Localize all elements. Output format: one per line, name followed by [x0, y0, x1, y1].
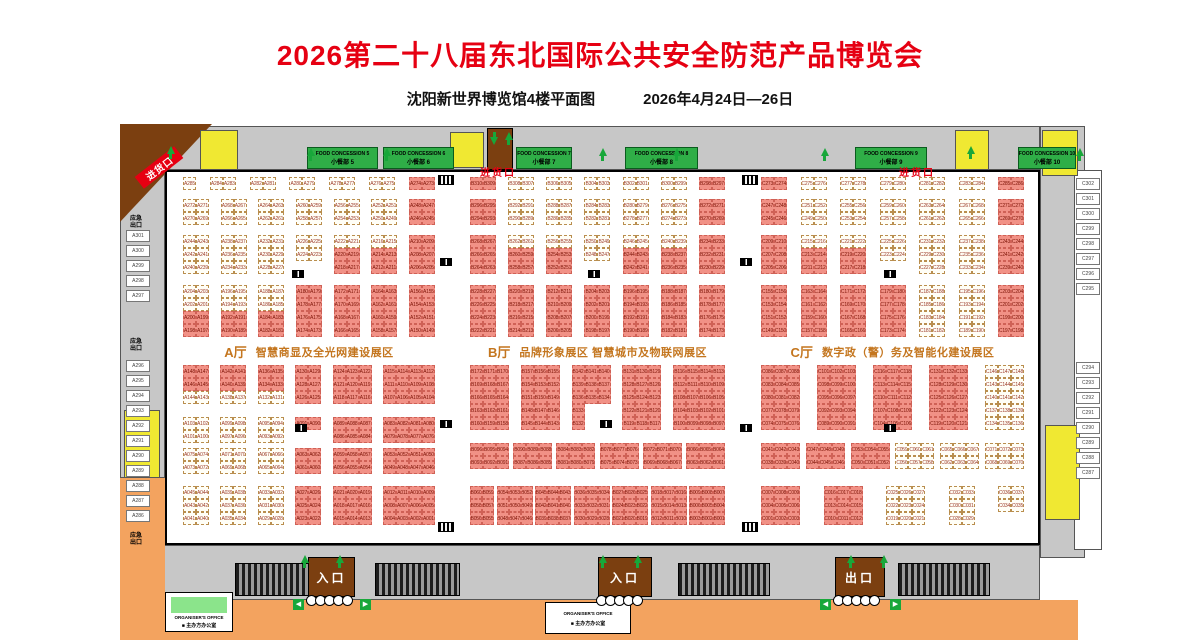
booth: A151 — [422, 311, 435, 324]
booth: B049 — [521, 499, 533, 512]
booth: C257 — [880, 212, 893, 225]
booth-group: C221C222C219C220C217C218 — [840, 235, 866, 274]
booth: B091 — [496, 456, 509, 469]
booth: A224 — [296, 248, 309, 261]
booth: A163 — [384, 285, 397, 298]
booth-band: C209C210C207C208C205C206C215C216C213C214… — [761, 235, 1024, 274]
booth: B201 — [597, 298, 610, 311]
booth: B268 — [470, 235, 483, 248]
booth: C259 — [880, 199, 893, 212]
emergency-exit-label: 应急出口 — [124, 339, 148, 353]
booth: B228 — [470, 285, 483, 298]
booth: B007 — [713, 486, 725, 499]
booth: C033 — [962, 486, 975, 499]
booth: A003 — [396, 512, 409, 525]
booth: A206 — [409, 261, 422, 274]
booth-group: A188A187A186A185A184A183A182A181 — [258, 285, 284, 337]
booth: C283 — [959, 177, 972, 190]
booth: C209 — [761, 235, 774, 248]
booth: B239 — [674, 235, 687, 248]
booth: B157 — [521, 365, 534, 378]
booth: B064 — [712, 443, 725, 456]
booth: B100 — [673, 417, 686, 430]
booth: B067 — [669, 456, 682, 469]
booth: A164 — [371, 285, 384, 298]
booth: B255 — [559, 235, 572, 248]
booth: A155 — [422, 285, 435, 298]
booth: A109 — [409, 378, 422, 391]
booth: C139 — [1011, 404, 1024, 417]
booth: B168 — [483, 378, 496, 391]
booth-group: A156A155A154A153A152A151A150A149 — [409, 285, 435, 337]
booth: B240 — [661, 235, 674, 248]
booth: B095 — [483, 443, 496, 456]
booth: B301 — [636, 177, 649, 190]
booth: C124 — [955, 404, 968, 417]
booth: B259 — [521, 248, 534, 261]
revolving-door-icon — [833, 595, 878, 606]
booth: C217 — [840, 261, 853, 274]
booth: C221 — [840, 235, 853, 248]
booth: A008 — [383, 499, 396, 512]
booth: C169 — [840, 298, 853, 311]
booth: A290 — [126, 450, 150, 462]
booth: B188 — [661, 285, 674, 298]
booth: C078 — [774, 404, 787, 417]
booth: C292 — [1076, 392, 1100, 404]
booth: B104 — [673, 404, 686, 417]
booth: C108 — [886, 404, 899, 417]
booth-group: A142A141A140A139A138A137 — [220, 365, 246, 404]
booth: A177 — [309, 298, 322, 311]
booth-group: A075A074A073A072 — [183, 448, 209, 474]
booth-group: B234B233B232B231B230B229 — [699, 235, 725, 274]
booth: B194 — [623, 298, 636, 311]
booth-group: C047C048C049C044C045C046 — [806, 443, 845, 469]
booth: B115 — [686, 365, 699, 378]
booth-group: A124A123A122A121A120A119A118A117A116 — [333, 365, 372, 404]
booth: A088 — [346, 417, 359, 430]
booth: B299 — [674, 177, 687, 190]
booth: C202 — [1011, 298, 1024, 311]
booth: C011 — [837, 512, 850, 525]
booth: C119 — [929, 417, 942, 430]
booth: A043 — [183, 499, 196, 512]
booth: B174 — [699, 324, 712, 337]
booth: B191 — [636, 311, 649, 324]
booth: C084 — [774, 378, 787, 391]
booth: B072 — [643, 443, 656, 456]
stairs-icon — [438, 522, 454, 532]
booth: C220 — [853, 248, 866, 261]
booth: C121 — [955, 417, 968, 430]
booth: B246 — [623, 235, 636, 248]
booth: C137 — [985, 404, 998, 417]
booth: C003 — [787, 512, 800, 525]
booth: C184 — [932, 311, 945, 324]
booth: B050 — [509, 499, 521, 512]
booth: B160 — [470, 417, 483, 430]
booth: A199 — [196, 311, 209, 324]
booth: C103 — [843, 365, 856, 378]
booth-band: C086C087C088C083C084C085C080C081C082C077… — [761, 365, 1024, 430]
floor-plan-page: 2026第二十八届东北国际公共安全防范产品博览会 沈阳新世界博览馆4楼平面图 2… — [0, 0, 1200, 644]
booth-group: C171C172C169C170C167C168C165C166 — [840, 285, 866, 337]
booth: B097 — [712, 417, 725, 430]
arrow-up-icon — [633, 555, 642, 568]
booth: C260 — [893, 199, 906, 212]
booth: B226 — [470, 298, 483, 311]
booth: A027 — [295, 486, 308, 499]
booth: B192 — [623, 311, 636, 324]
booth: B139 — [572, 378, 585, 391]
booth: B306 — [546, 177, 559, 190]
booth: B096 — [470, 443, 483, 456]
booth: C038 — [761, 456, 774, 469]
booth-group: A196A195A194A193A192A191A190A189 — [221, 285, 247, 337]
booth: A099 — [220, 417, 233, 430]
arrow-up-icon — [166, 146, 175, 159]
booth: A101 — [183, 430, 196, 443]
booth: C115 — [899, 378, 912, 391]
booth: A021 — [333, 486, 346, 499]
booth: A107 — [383, 391, 396, 404]
booth: A157 — [384, 324, 397, 337]
booth-band: B172B171B170B169B168B167B166B165B164B163… — [470, 365, 725, 430]
booth: A041 — [183, 512, 196, 525]
booth: C074 — [761, 417, 774, 430]
booth: A263 — [271, 199, 284, 212]
booth: C069 — [998, 456, 1011, 469]
booth: C081 — [774, 391, 787, 404]
booth-group: A180A179A178A177A176A175A174A173 — [296, 285, 322, 337]
booth: B261 — [521, 235, 534, 248]
booth: C204 — [1011, 285, 1024, 298]
booth: C181 — [919, 324, 932, 337]
booth-group: A210A209A208A207A206A205 — [409, 235, 435, 274]
booth: B280 — [623, 199, 636, 212]
booth: B051 — [497, 499, 509, 512]
booth: A215 — [384, 235, 397, 248]
booth: A082 — [396, 417, 409, 430]
booth: A150 — [409, 324, 422, 337]
booth: C219 — [840, 248, 853, 261]
booth: C232 — [932, 235, 945, 248]
booth: C278 — [853, 177, 866, 190]
booth: A108 — [422, 378, 435, 391]
supply-entrance-label: 进货口 — [469, 164, 527, 179]
booth: B230 — [699, 261, 712, 274]
booth: B134 — [598, 391, 611, 404]
booth: A078 — [396, 430, 409, 443]
booth: B258 — [508, 261, 521, 274]
booth: C042 — [774, 443, 787, 456]
organiser-office-cn: ■ 主办方办公室 — [546, 620, 630, 627]
booth: A240 — [183, 261, 196, 274]
booth: C012 — [850, 512, 863, 525]
booth: A125 — [308, 391, 321, 404]
booth: A254 — [334, 212, 347, 225]
booth: B107 — [686, 391, 699, 404]
revolving-door-icon — [596, 595, 641, 606]
booth: B102 — [699, 404, 712, 417]
booth-group: B018B017B016B015B014B013B012B011B010 — [651, 486, 687, 525]
booth: C125 — [929, 391, 942, 404]
booth-group: A027A026A025A024A023A022 — [295, 486, 321, 525]
booth-group: B288B287B286B285 — [546, 199, 572, 225]
booth: B058 — [470, 499, 482, 512]
booth: B021 — [612, 512, 624, 525]
booth: C026 — [899, 486, 912, 499]
booth: A012 — [383, 486, 396, 499]
booth: C096 — [830, 391, 843, 404]
booth: B256 — [546, 235, 559, 248]
booth: B143 — [547, 417, 560, 430]
hall-c-name: 数字政（警）务及智能化建设展区 — [822, 344, 995, 360]
booth: B110 — [699, 378, 712, 391]
booth: A233 — [234, 261, 247, 274]
booth: B036 — [574, 486, 586, 499]
booth: B169 — [470, 378, 483, 391]
booth: B090 — [513, 443, 526, 456]
booth-group: C032C033C030C031C028C029 — [949, 486, 975, 525]
booth: B094 — [496, 443, 509, 456]
booth: B202 — [584, 298, 597, 311]
booth: A300 — [126, 245, 150, 257]
booth: A236 — [221, 248, 234, 261]
booth: A086 — [333, 430, 346, 443]
booth: A052 — [396, 448, 409, 461]
booth: A200 — [183, 311, 196, 324]
booth: A229 — [271, 248, 284, 261]
booth: B170 — [496, 365, 509, 378]
booth: C030 — [949, 499, 962, 512]
booth: B017 — [663, 486, 675, 499]
booth: B002 — [701, 512, 713, 525]
booth: B247 — [597, 248, 610, 261]
booth-group: B276B275B274B273 — [661, 199, 687, 225]
booth: A178 — [296, 298, 309, 311]
booth: C225 — [880, 235, 893, 248]
booth: B044 — [547, 486, 559, 499]
booth: B045 — [535, 486, 547, 499]
booth: C286 — [1011, 177, 1024, 190]
booth: A275 — [382, 177, 395, 190]
food-concession-cn: 小餐部 10 — [1034, 157, 1060, 166]
booth: A166 — [334, 324, 347, 337]
booth: A268 — [221, 199, 234, 212]
booth: A205 — [422, 261, 435, 274]
booth: A034 — [233, 512, 246, 525]
booth: C032 — [949, 486, 962, 499]
booth: B135 — [585, 391, 598, 404]
booth: A245 — [422, 212, 435, 225]
booth: B127 — [635, 378, 648, 391]
booth-group: B157B156B155B154B153B152B151B150B149B148… — [521, 365, 560, 430]
booth: A173 — [309, 324, 322, 337]
booth: B217 — [521, 298, 534, 311]
booth: B148 — [521, 404, 534, 417]
door-icon — [440, 258, 452, 266]
booth-group: A021A020A019A018A017A016A015A014A013 — [333, 486, 372, 525]
booth: B059 — [482, 486, 494, 499]
booth: C236 — [972, 248, 985, 261]
booth-group: A089A088A087A086A085A084 — [333, 417, 372, 443]
booth: A288 — [126, 480, 150, 492]
booth: B286 — [546, 212, 559, 225]
booth: C275 — [801, 177, 814, 190]
booth: A219 — [347, 248, 360, 261]
booth: A122 — [359, 365, 372, 378]
booth: C226 — [893, 235, 906, 248]
booth: C110 — [873, 391, 886, 404]
booth: A149 — [422, 324, 435, 337]
booth: C134 — [985, 417, 998, 430]
booth-group: A282A281 — [250, 177, 276, 190]
booth: A074 — [196, 448, 209, 461]
booth: C052 — [877, 456, 890, 469]
booth: B081 — [556, 456, 569, 469]
utility-room — [200, 130, 238, 170]
booth: C102 — [830, 365, 843, 378]
booth: B262 — [508, 235, 521, 248]
booth: C146 — [985, 365, 998, 378]
booth: C197 — [998, 324, 1011, 337]
booth: C136 — [1011, 417, 1024, 430]
booth: B108 — [673, 391, 686, 404]
booth-group: B172B171B170B169B168B167B166B165B164B163… — [470, 365, 509, 430]
booth: C143 — [985, 378, 998, 391]
booth-group: C163C164C161C162C159C160C157C158 — [801, 285, 827, 337]
booth: C135 — [998, 417, 1011, 430]
booth: A257 — [309, 212, 322, 225]
booth-group: B300B299 — [661, 177, 687, 190]
booth: C083 — [761, 378, 774, 391]
escalator-bank — [678, 563, 770, 596]
booth: A183 — [271, 311, 284, 324]
booth: B155 — [547, 365, 560, 378]
stairs-icon — [438, 175, 454, 185]
booth: C302 — [1076, 178, 1100, 190]
booth: C250 — [814, 212, 827, 225]
booth: B001 — [713, 512, 725, 525]
booth-group: B296B295B294B293 — [470, 199, 496, 225]
booth-group: A071A070A069A068 — [220, 448, 246, 474]
booth: B118 — [635, 417, 648, 430]
booth: C014 — [837, 499, 850, 512]
booth: B043 — [559, 486, 571, 499]
booth: B205 — [559, 324, 572, 337]
booth-group: C277C278 — [840, 177, 866, 190]
booth: A094 — [271, 417, 284, 430]
booth: C203 — [998, 285, 1011, 298]
booth: A218 — [334, 261, 347, 274]
booth-group: B096B095B094B093B092B091 — [470, 443, 509, 469]
booth: A010 — [409, 486, 422, 499]
booth: C192 — [972, 311, 985, 324]
booth: C227 — [919, 261, 932, 274]
exit-box: 出口 — [835, 557, 885, 597]
booth: C294 — [1076, 362, 1100, 374]
booth: A137 — [233, 391, 246, 404]
booth: B142 — [572, 365, 585, 378]
booth-group: C195C196C193C194C191C192C189C190 — [959, 285, 985, 337]
booth: B154 — [521, 378, 534, 391]
booth: C045 — [819, 456, 832, 469]
booth: C068 — [985, 456, 998, 469]
booth: A294 — [126, 390, 150, 402]
booth-group: A244A243A242A241A240A239 — [183, 235, 209, 274]
booth-group: A172A171A170A169A168A167A166A165 — [334, 285, 360, 337]
booth: B254 — [546, 248, 559, 261]
booth: B278 — [623, 212, 636, 225]
booth: C028 — [949, 512, 962, 525]
booth: B040 — [559, 499, 571, 512]
booth: C120 — [942, 417, 955, 430]
booth-group: A285 — [183, 177, 196, 190]
booth: A230 — [258, 248, 271, 261]
booth: B166 — [470, 391, 483, 404]
booth: B083 — [569, 443, 582, 456]
booth: B290 — [508, 212, 521, 225]
booth: B088 — [539, 443, 552, 456]
booth: B209 — [559, 298, 572, 311]
booth: B296 — [470, 199, 483, 212]
booth: C024 — [912, 499, 925, 512]
booth-group: A130A129A128A127A126A125 — [295, 365, 321, 404]
booth: A238 — [221, 235, 234, 248]
booth: B080 — [569, 456, 582, 469]
booth: B211 — [559, 285, 572, 298]
booth: B195 — [636, 285, 649, 298]
booth: A020 — [346, 486, 359, 499]
booth-group: C215C216C213C214C211C212 — [801, 235, 827, 274]
booth: A040 — [196, 512, 209, 525]
booth: C138 — [998, 404, 1011, 417]
booth: B098 — [699, 417, 712, 430]
booth: B178 — [699, 298, 712, 311]
booth: C048 — [819, 443, 832, 456]
booth: C187 — [919, 285, 932, 298]
booth: B131 — [622, 365, 635, 378]
booth: C077 — [761, 404, 774, 417]
booth: A156 — [409, 285, 422, 298]
booth: C174 — [893, 324, 906, 337]
booth: C051 — [864, 456, 877, 469]
booth: B243 — [636, 248, 649, 261]
booth: C058 — [921, 456, 934, 469]
booth: A295 — [126, 375, 150, 387]
booth: C050 — [851, 456, 864, 469]
food-concession: FOOD CONCESSION 8小餐部 8 — [625, 147, 698, 169]
booth: A226 — [296, 235, 309, 248]
booth: C255 — [840, 199, 853, 212]
booth: C015 — [850, 499, 863, 512]
booth: B185 — [674, 298, 687, 311]
booth: C248 — [774, 199, 787, 212]
booth: A247 — [422, 199, 435, 212]
booth: C188 — [932, 285, 945, 298]
booth: C123 — [942, 404, 955, 417]
booth: B223 — [483, 311, 496, 324]
booth: B252 — [546, 261, 559, 274]
booth: C290 — [1076, 422, 1100, 434]
booth: B010 — [675, 512, 687, 525]
booth-group: B027B026B025B024B023B022B021B020B019 — [612, 486, 648, 525]
booth: C190 — [972, 324, 985, 337]
booth-group: A278A277 — [329, 177, 355, 190]
booth: A037 — [220, 499, 233, 512]
